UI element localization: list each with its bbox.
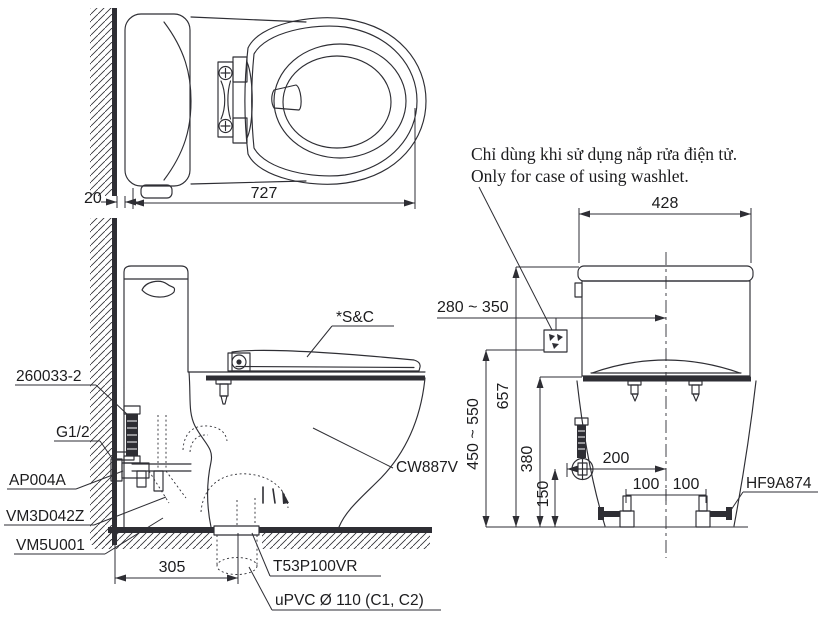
washlet-note: Chỉ dùng khi sử dụng nắp rửa điện tử. On… <box>471 144 737 330</box>
dim-727: 727 <box>251 185 278 202</box>
seat-mount-bolts <box>628 381 702 401</box>
label-cw887v: CW887V <box>396 459 459 476</box>
dim-428: 428 <box>652 195 679 212</box>
dim-305: 305 <box>159 559 186 576</box>
installation-drawing: 727 20 <box>0 0 822 626</box>
side-view: 260033-2 G1/2 AP004A VM3D042Z VM5U001 *S… <box>4 218 459 610</box>
callout-model: CW887V <box>313 428 459 476</box>
label-vm5u001: VM5U001 <box>16 537 85 554</box>
floor-hatch <box>94 530 432 549</box>
rear-view: Chỉ dùng khi sử dụng nắp rửa điện tử. On… <box>437 144 818 558</box>
dim-380: 380 <box>519 446 536 473</box>
label-vm3d042z: VM3D042Z <box>6 508 84 525</box>
wall-hatch-top <box>90 8 115 196</box>
dim-20: 20 <box>84 190 102 207</box>
dim-supply-offset-range: 280 ~ 350 <box>437 299 666 330</box>
note-line-vi: Chỉ dùng khi sử dụng nắp rửa điện tử. <box>471 144 737 164</box>
dim-280-350: 280 ~ 350 <box>437 299 509 316</box>
callout-seal: VM3D042Z <box>4 497 166 525</box>
dim-657: 657 <box>495 383 512 410</box>
callout-seat: *S&C <box>307 309 394 357</box>
supply-shank-rear <box>572 418 593 480</box>
dim-top-depth: 727 <box>133 108 415 209</box>
label-t53p100vr: T53P100VR <box>273 558 357 575</box>
floor-bolt-right <box>696 496 732 527</box>
dim-outlet-height-range: 450 ~ 550 <box>465 350 544 527</box>
wall-hatch-side <box>90 218 115 545</box>
dim-150: 150 <box>535 481 552 508</box>
dim-200: 200 <box>603 450 630 467</box>
label-hf9a874: HF9A874 <box>746 475 812 492</box>
label-260033-2: 260033-2 <box>16 368 82 385</box>
label-g12: G1/2 <box>56 424 90 441</box>
dim-100-left: 100 <box>633 476 660 493</box>
toilet-top-outline <box>125 14 426 198</box>
label-upvc: uPVC Ø 110 (C1, C2) <box>275 592 424 609</box>
toilet-side-outline <box>124 266 425 527</box>
dim-supply-height: 150 <box>535 469 555 527</box>
label-sc: *S&C <box>336 309 374 326</box>
top-view: 727 20 <box>84 8 426 209</box>
dim-tank-width: 428 <box>579 195 751 263</box>
supply-valve-assembly <box>111 406 191 503</box>
note-line-en: Only for case of using washlet. <box>471 166 689 186</box>
power-outlet-box <box>544 330 567 352</box>
label-ap004a: AP004A <box>9 472 67 489</box>
seat-hinge-top <box>218 57 252 143</box>
dim-450-550: 450 ~ 550 <box>465 398 482 470</box>
dim-100-right: 100 <box>673 476 700 493</box>
